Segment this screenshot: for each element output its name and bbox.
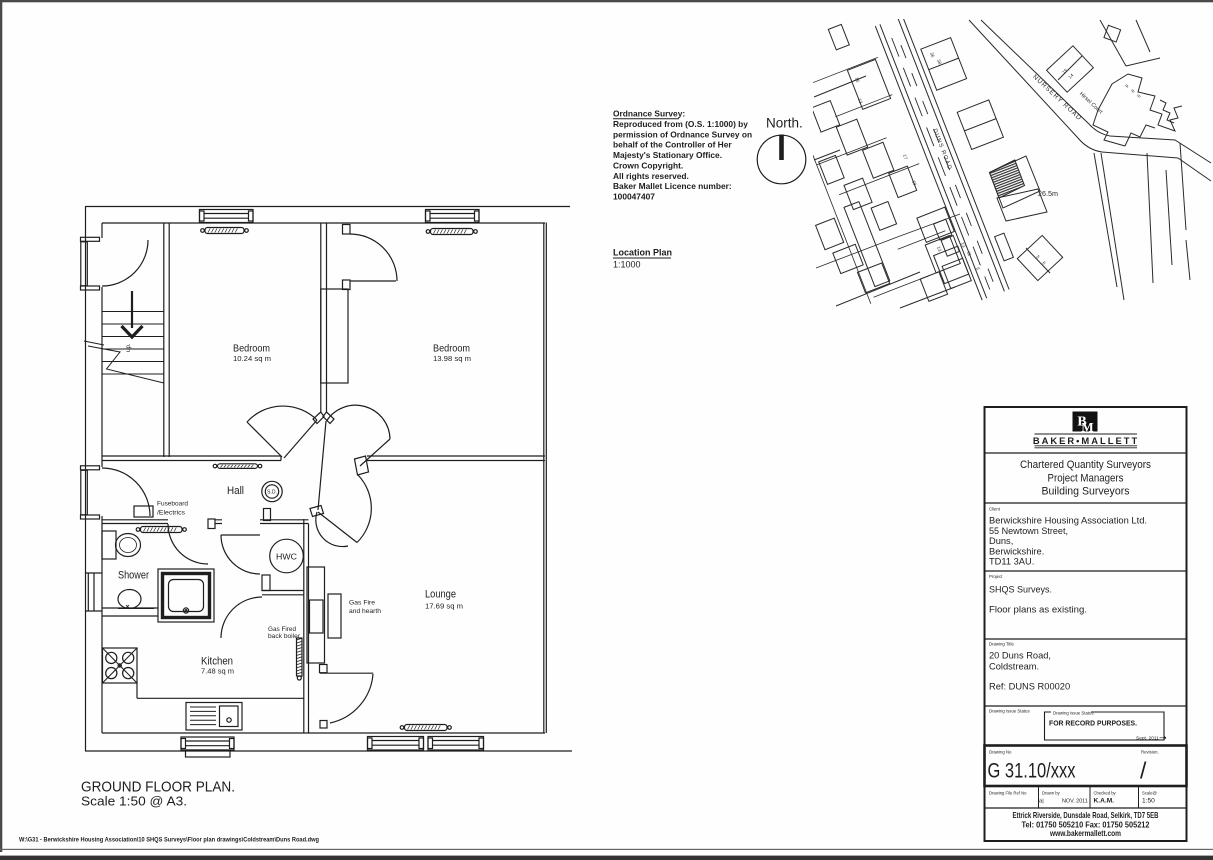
- svg-text:behalf of the Controller of He: behalf of the Controller of Her: [613, 140, 732, 150]
- svg-text:Client: Client: [989, 507, 1001, 512]
- svg-text:Bedroom: Bedroom: [233, 343, 270, 355]
- svg-text:/Electrics: /Electrics: [157, 511, 185, 517]
- svg-text:|a|: |a|: [1038, 799, 1044, 805]
- svg-text:Project Managers: Project Managers: [1048, 472, 1125, 484]
- svg-text:Baker Mallet Licence number:: Baker Mallet Licence number:: [613, 181, 732, 191]
- svg-text:17.69 sq m: 17.69 sq m: [425, 604, 463, 611]
- svg-text:North.: North.: [766, 116, 803, 131]
- svg-text:Revision.: Revision.: [1141, 750, 1159, 755]
- svg-text:Drawing File Ref No: Drawing File Ref No: [989, 791, 1027, 796]
- svg-text:7.48 sq m: 7.48 sq m: [201, 669, 234, 676]
- svg-text:Coldstream.: Coldstream.: [989, 662, 1039, 672]
- svg-text:Location Plan: Location Plan: [613, 248, 672, 258]
- svg-text:FOR RECORD PURPOSES.: FOR RECORD PURPOSES.: [1049, 719, 1137, 728]
- svg-text:Chartered Quantity Surveyors: Chartered Quantity Surveyors: [1020, 459, 1152, 471]
- svg-text:Berwickshire Housing Associati: Berwickshire Housing Association Ltd.: [989, 516, 1147, 526]
- svg-text:and hearth: and hearth: [349, 609, 381, 615]
- svg-text:55 Newtown Street,: 55 Newtown Street,: [989, 526, 1068, 536]
- svg-text:13.98 sq m: 13.98 sq m: [433, 356, 471, 363]
- svg-text:W:\G31 - Berwickshire Housing: W:\G31 - Berwickshire Housing Associatio…: [19, 837, 319, 844]
- svg-text:Shower: Shower: [118, 570, 149, 582]
- svg-text:100047407: 100047407: [613, 191, 655, 201]
- svg-text:TD11 3AU.: TD11 3AU.: [989, 557, 1034, 567]
- svg-text:1:50: 1:50: [1142, 798, 1155, 805]
- svg-text:/: /: [1140, 758, 1147, 784]
- svg-text:Drawing Title: Drawing Title: [989, 642, 1014, 647]
- svg-text:permission of Ordnance Survey: permission of Ordnance Survey on: [613, 129, 752, 139]
- svg-text:Gas Fired: Gas Fired: [268, 627, 296, 633]
- svg-text:BAKER•MALLETT: BAKER•MALLETT: [1033, 435, 1139, 446]
- svg-text:SHQS Surveys.: SHQS Surveys.: [989, 585, 1052, 595]
- svg-text:Scale 1:50 @ A3.: Scale 1:50 @ A3.: [81, 794, 187, 809]
- svg-text:Hall: Hall: [227, 485, 244, 497]
- svg-text:back boiler: back boiler: [268, 634, 300, 640]
- svg-text:Drawing Issue Status: Drawing Issue Status: [1053, 711, 1094, 716]
- svg-text:Fuseboard: Fuseboard: [157, 502, 188, 508]
- svg-text:Drawing No: Drawing No: [989, 750, 1012, 755]
- svg-text:M: M: [1081, 420, 1093, 435]
- svg-text:S.D.: S.D.: [267, 490, 277, 496]
- svg-text:Kitchen: Kitchen: [201, 656, 233, 668]
- svg-text:K.A.M.: K.A.M.: [1094, 798, 1115, 805]
- svg-text:Floor plans as existing.: Floor plans as existing.: [989, 605, 1087, 615]
- svg-text:Drawing Issue Status: Drawing Issue Status: [989, 709, 1030, 714]
- svg-text:Ordnance Survey:: Ordnance Survey:: [613, 109, 685, 119]
- svg-text:All rights reserved.: All rights reserved.: [613, 171, 689, 181]
- svg-text:Majesty's Stationary Office.: Majesty's Stationary Office.: [613, 150, 722, 160]
- svg-text:Ref: DUNS R00020: Ref: DUNS R00020: [989, 682, 1070, 692]
- svg-text:Checked by: Checked by: [1094, 791, 1117, 796]
- svg-text:G 31.10/xxx: G 31.10/xxx: [988, 759, 1076, 783]
- svg-text:Duns,: Duns,: [989, 536, 1013, 546]
- svg-text:HWC: HWC: [276, 552, 297, 562]
- svg-text:Bedroom: Bedroom: [433, 343, 470, 355]
- svg-text:Berwickshire.: Berwickshire.: [989, 546, 1044, 556]
- svg-text:Gas Fire: Gas Fire: [349, 601, 376, 607]
- svg-text:Sept. 2011: Sept. 2011: [1136, 736, 1159, 742]
- svg-text:www.bakermallett.com: www.bakermallett.com: [1049, 828, 1121, 838]
- svg-text:Crown Copyright.: Crown Copyright.: [613, 160, 683, 170]
- svg-text:NOV. 2011: NOV. 2011: [1062, 799, 1088, 805]
- svg-text:Reproduced from (O.S. 1:1000): Reproduced from (O.S. 1:1000) by: [613, 119, 748, 129]
- svg-text:10.24 sq m: 10.24 sq m: [233, 356, 271, 363]
- svg-text:Lounge: Lounge: [425, 589, 456, 601]
- svg-text:Building Surveyors: Building Surveyors: [1042, 486, 1131, 498]
- svg-text:Project: Project: [989, 574, 1003, 579]
- svg-text:Scale@: Scale@: [1142, 791, 1157, 796]
- svg-text:26.5m: 26.5m: [1038, 189, 1058, 198]
- svg-text:20 Duns Road,: 20 Duns Road,: [989, 651, 1051, 661]
- svg-text:Drawn by: Drawn by: [1042, 791, 1061, 796]
- svg-text:1:1000: 1:1000: [613, 260, 641, 270]
- svg-text:up.: up.: [125, 343, 132, 352]
